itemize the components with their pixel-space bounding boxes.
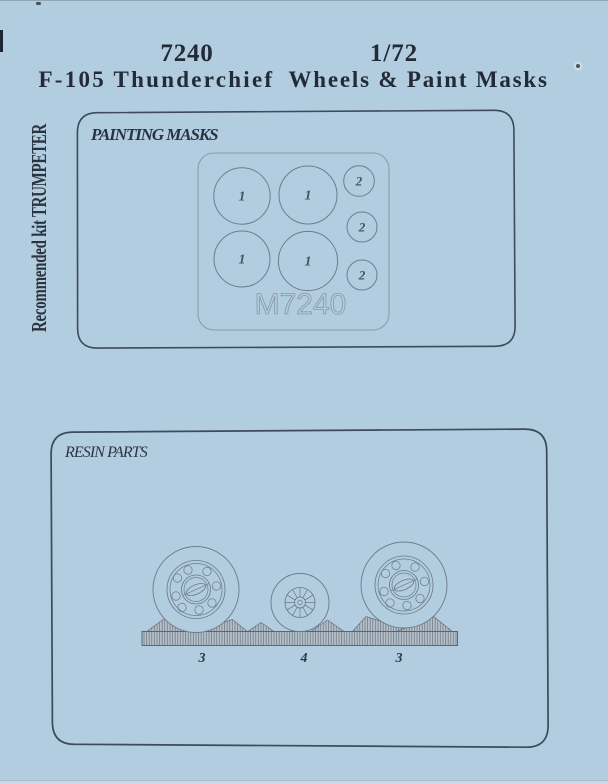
svg-text:2: 2 xyxy=(355,174,363,189)
svg-text:3: 3 xyxy=(395,651,403,666)
svg-text:3: 3 xyxy=(198,651,206,666)
svg-text:1: 1 xyxy=(239,253,246,268)
svg-text:2: 2 xyxy=(358,268,366,283)
svg-text:1: 1 xyxy=(239,190,246,205)
svg-text:M7240: M7240 xyxy=(255,288,347,321)
svg-text:2: 2 xyxy=(358,220,366,235)
svg-text:1: 1 xyxy=(305,189,312,204)
svg-text:1: 1 xyxy=(305,255,312,270)
svg-text:4: 4 xyxy=(300,651,308,666)
